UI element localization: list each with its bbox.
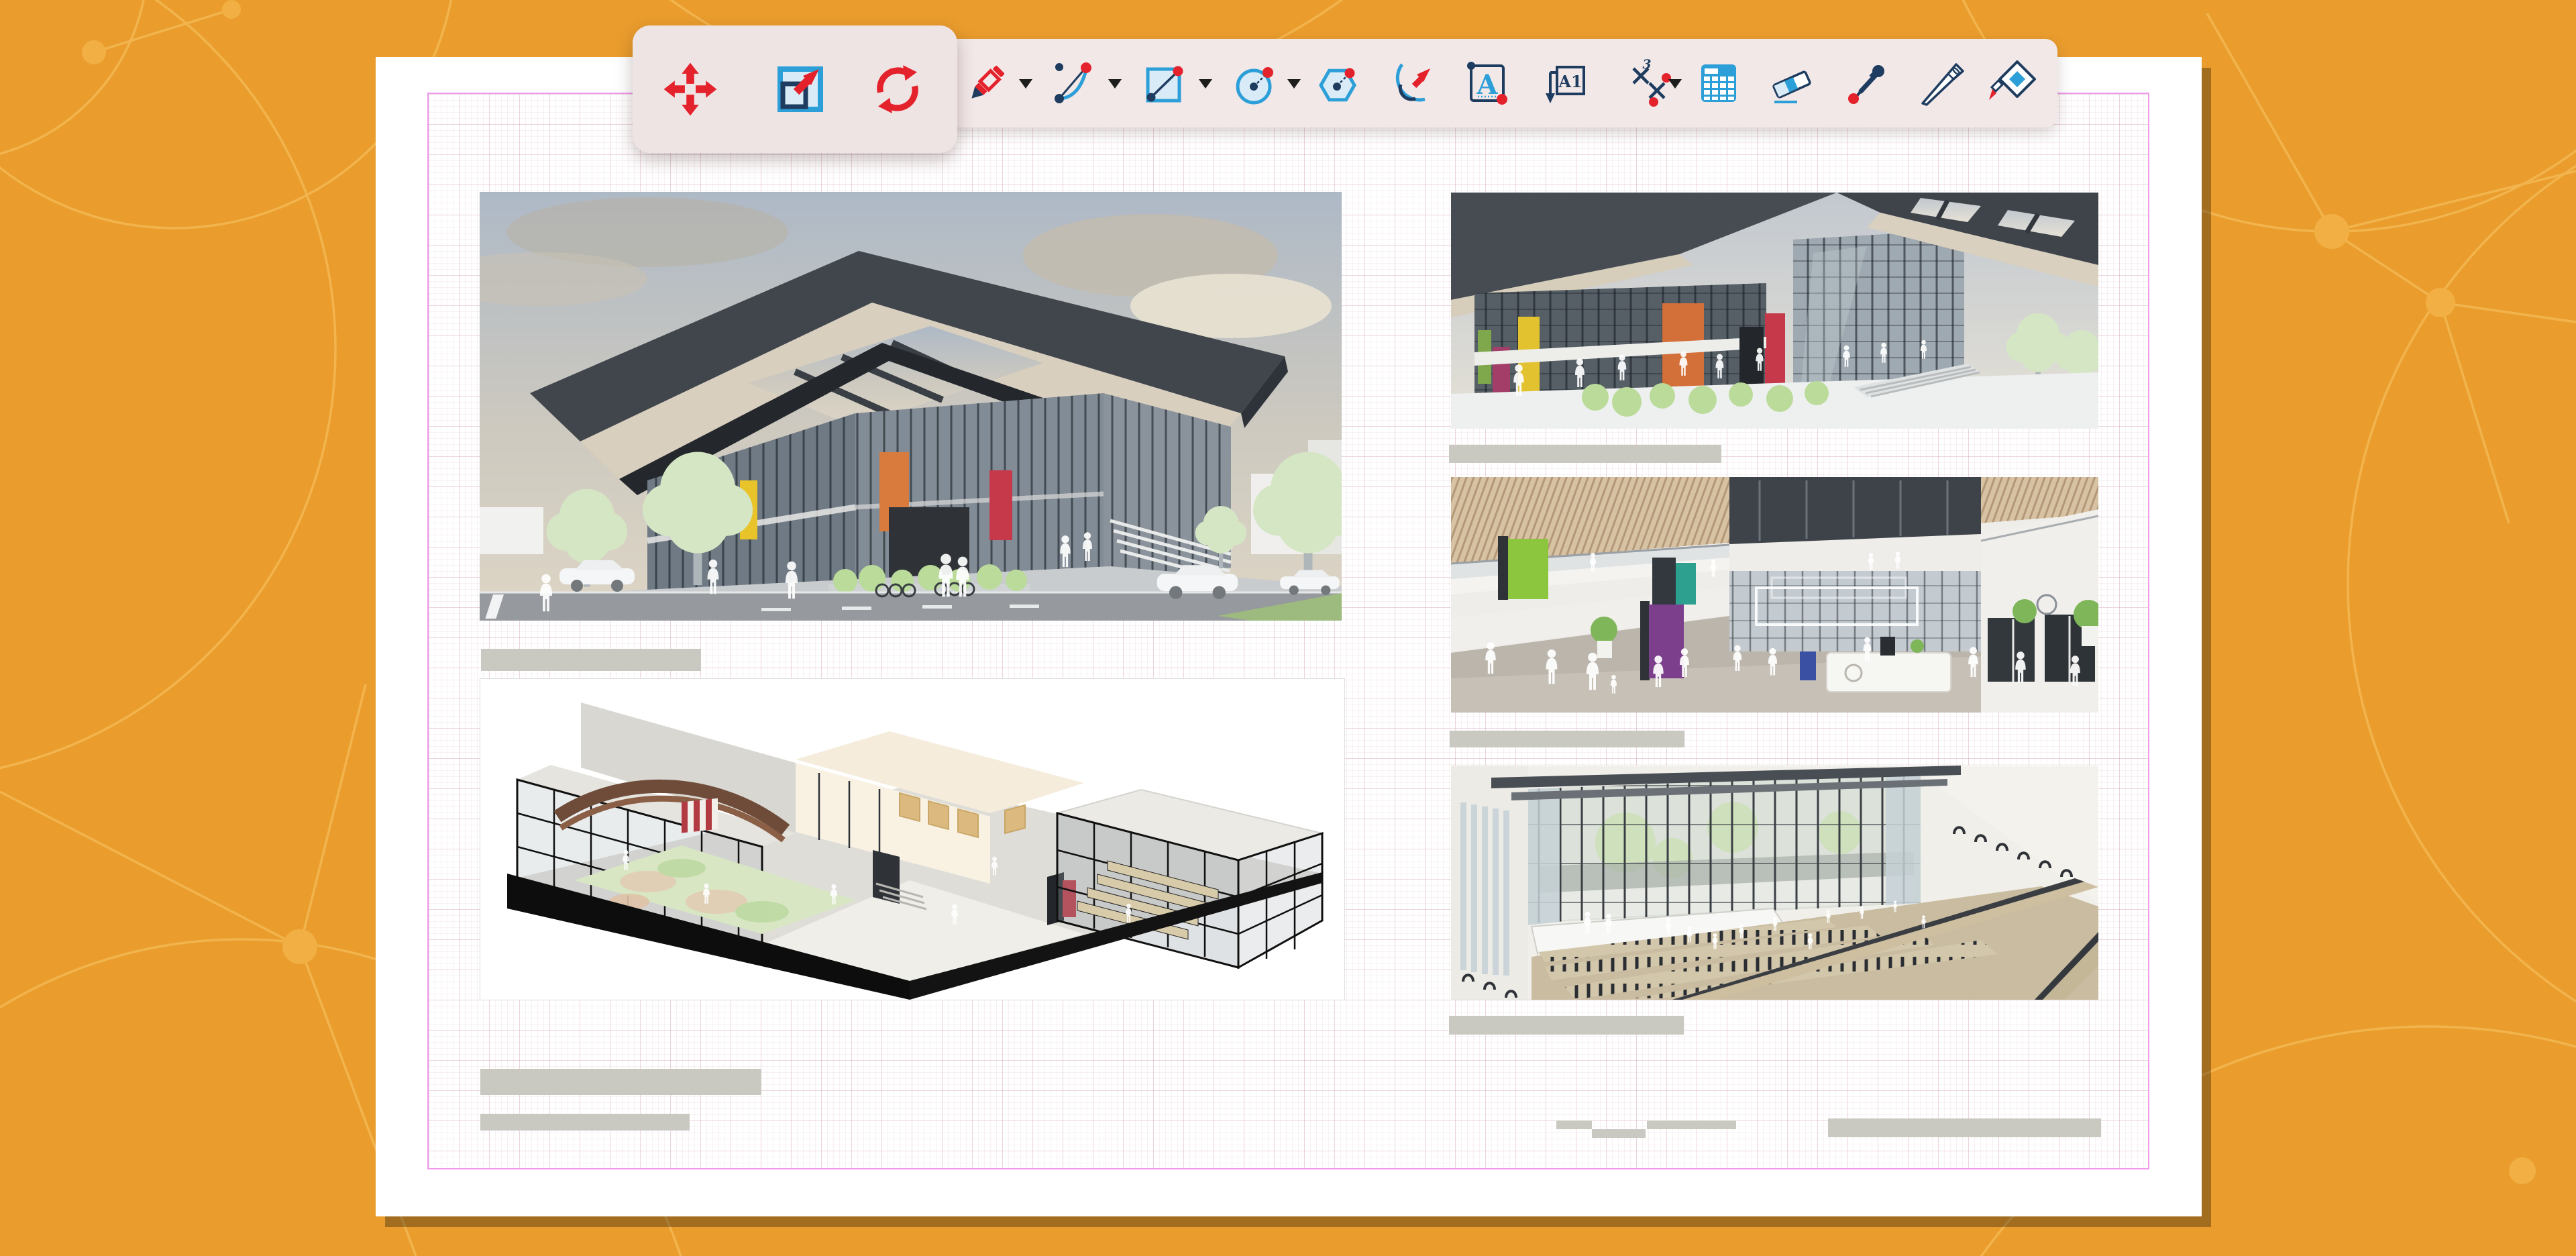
rectangle-dropdown[interactable]: [1199, 79, 1212, 89]
curve-dropdown[interactable]: [1108, 79, 1122, 89]
rotate-arrows-icon: [868, 60, 927, 119]
rectangle-icon: [1140, 58, 1191, 109]
caption-text-bar: [1449, 445, 1721, 463]
scale-tool[interactable]: [771, 60, 830, 119]
point-markers-tool[interactable]: 3: [1624, 58, 1675, 109]
move-tool[interactable]: [661, 60, 720, 119]
legend-bar: [1647, 1120, 1736, 1129]
knife-tool[interactable]: [1917, 58, 1968, 109]
caption-text-bar: [1449, 1016, 1684, 1035]
circle-dropdown[interactable]: [1287, 79, 1301, 89]
rotate-tool[interactable]: [868, 60, 927, 119]
text-a1-arrow-icon: A1: [1541, 58, 1592, 109]
hexagon-icon: [1315, 58, 1366, 109]
x3-points-icon: 3: [1624, 58, 1675, 109]
curve-tool[interactable]: [1049, 58, 1100, 109]
glue-bottle-icon: [1988, 58, 2039, 109]
eyedropper-icon: [1842, 58, 1893, 109]
pencil-dropdown[interactable]: [1019, 79, 1032, 89]
eraser-tool[interactable]: [1766, 58, 1817, 109]
rectangle-tool[interactable]: [1140, 58, 1191, 109]
curve-icon: [1049, 58, 1100, 109]
app-screen: A A1 3: [0, 0, 2576, 1256]
glue-tool[interactable]: [1988, 58, 2039, 109]
arc-arrow-icon: [1387, 58, 1438, 109]
legend-bar: [1592, 1129, 1646, 1138]
text-tool[interactable]: A: [1462, 58, 1513, 109]
sequential-text-tool[interactable]: A1: [1541, 58, 1592, 109]
redacted-text-bar: [480, 1069, 761, 1095]
polygon-tool[interactable]: [1315, 58, 1366, 109]
svg-text:3: 3: [1642, 58, 1651, 72]
svg-text:A1: A1: [1558, 72, 1582, 91]
redacted-text-bar: [1828, 1118, 2101, 1137]
move-arrows-icon: [661, 60, 720, 119]
text-a-icon: A: [1462, 58, 1513, 109]
atrium-interior-render[interactable]: [1451, 477, 2098, 713]
pencil-icon: [961, 58, 1012, 109]
isometric-cutaway-render[interactable]: [480, 678, 1345, 1000]
auditorium-render[interactable]: [1451, 766, 2098, 1000]
legend-bar: [1556, 1120, 1592, 1129]
courtyard-render[interactable]: [1451, 193, 2098, 429]
circle-icon: [1231, 58, 1282, 109]
scale-square-arrow-icon: [771, 60, 830, 119]
exterior-street-render[interactable]: [480, 192, 1342, 621]
pencil-tool[interactable]: [961, 58, 1012, 109]
eraser-icon: [1766, 58, 1817, 109]
transform-tools-panel: [633, 25, 957, 153]
table-grid-icon: [1693, 58, 1744, 109]
arc-sweep-tool[interactable]: [1387, 58, 1438, 109]
caption-text-bar: [1450, 731, 1684, 747]
color-picker-tool[interactable]: [1842, 58, 1893, 109]
redacted-text-bar: [480, 1114, 690, 1131]
circle-tool[interactable]: [1231, 58, 1282, 109]
caption-text-bar: [481, 649, 701, 671]
table-tool[interactable]: [1693, 58, 1744, 109]
knife-icon: [1917, 58, 1968, 109]
canvas-page[interactable]: [376, 57, 2202, 1216]
point-markers-dropdown[interactable]: [1668, 79, 1682, 89]
